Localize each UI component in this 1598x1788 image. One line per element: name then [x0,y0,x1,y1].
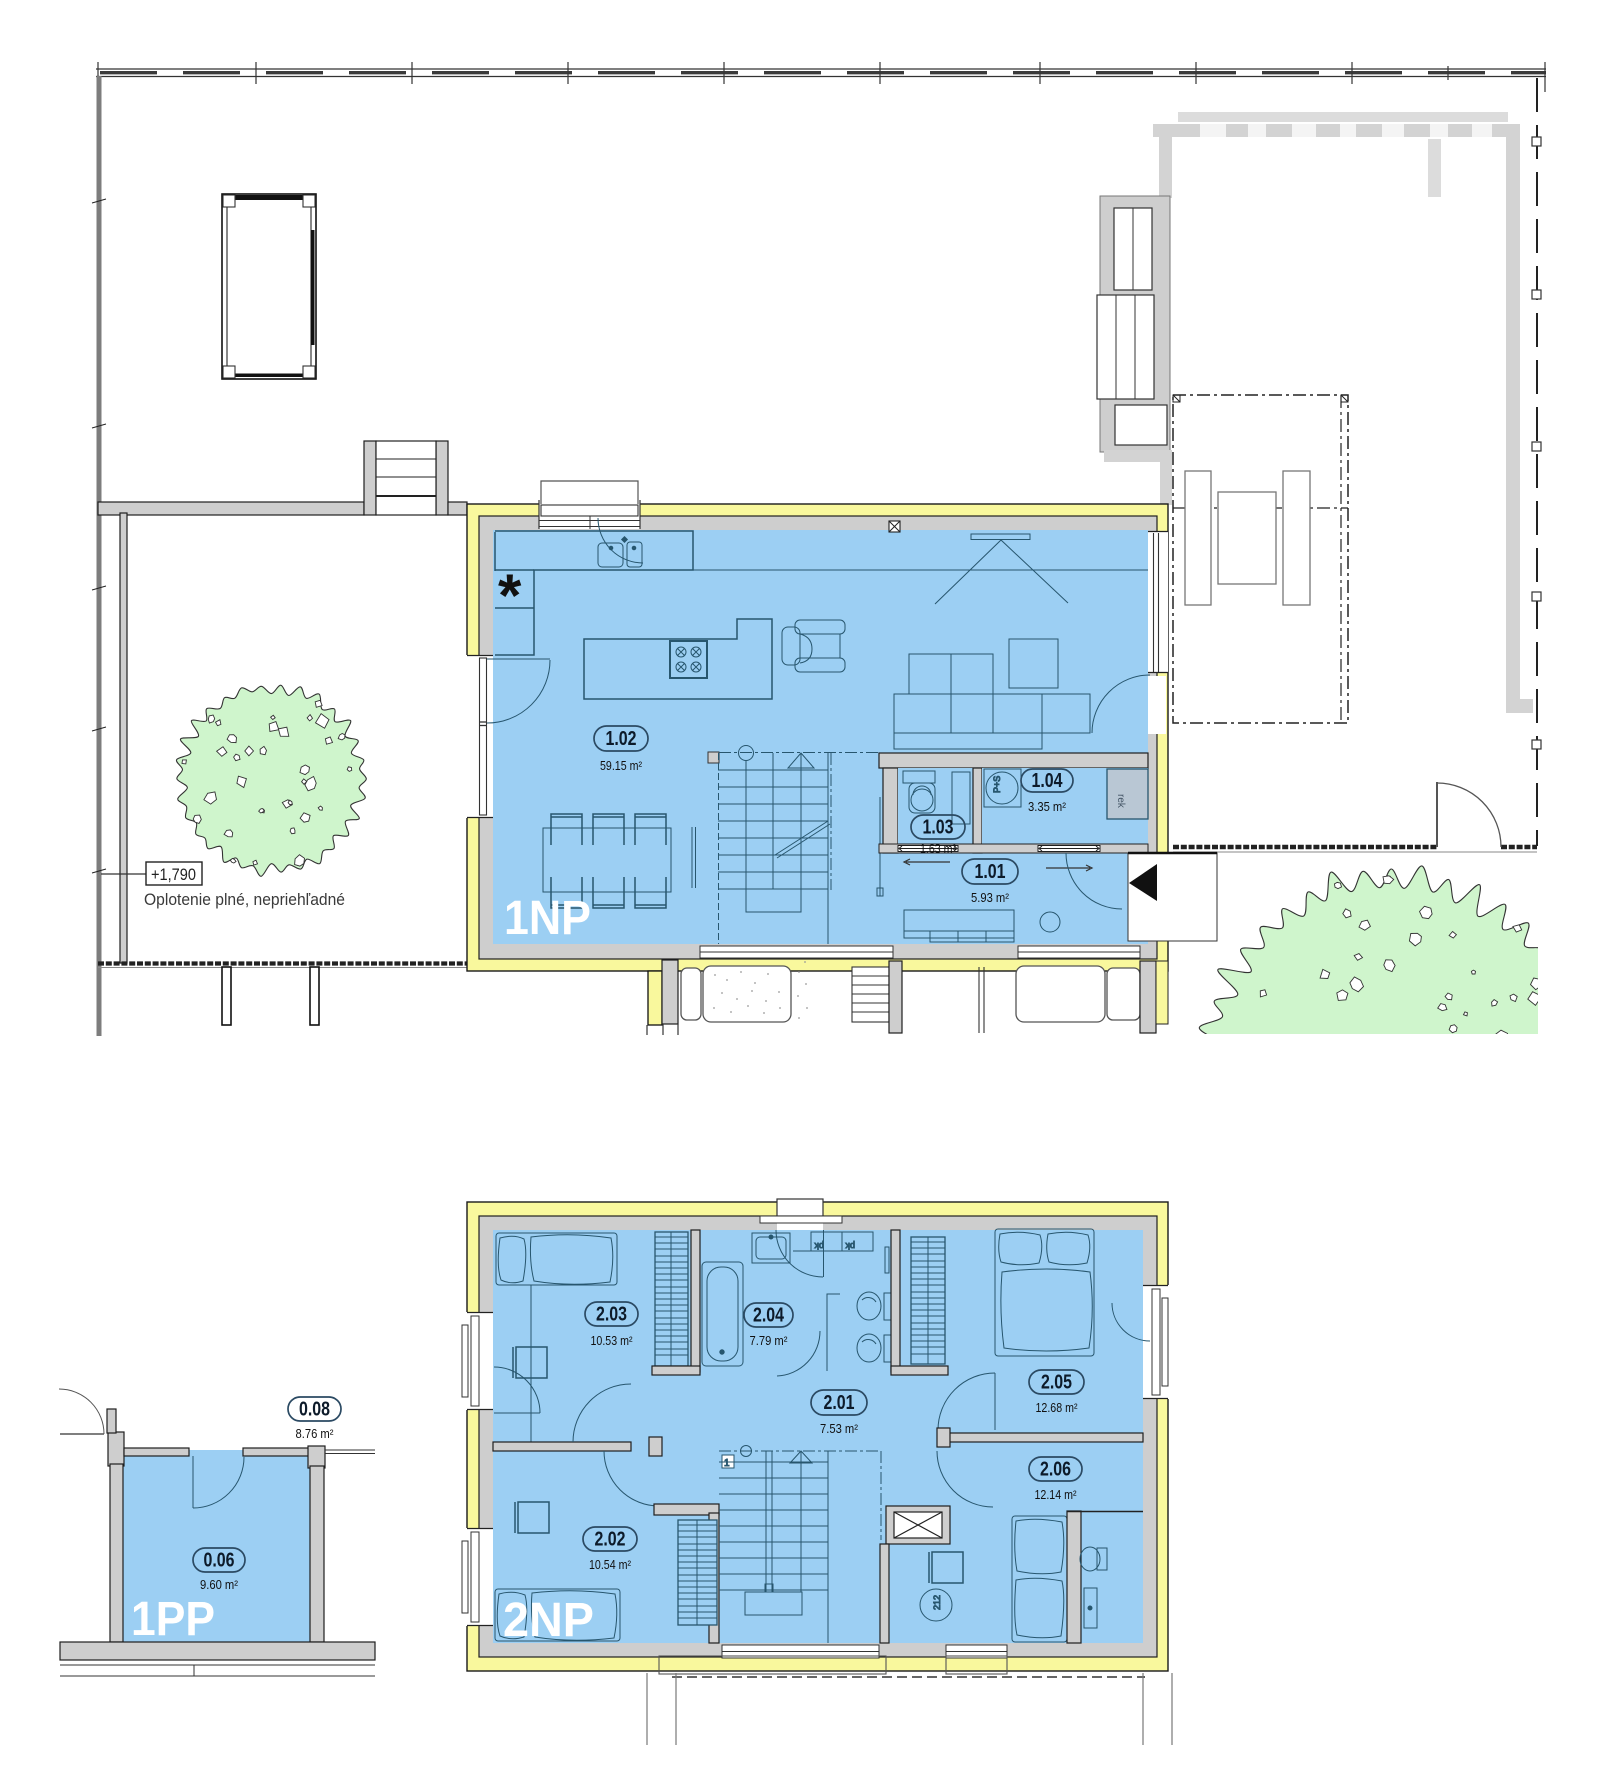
svg-text:5.93 m²: 5.93 m² [971,890,1010,905]
svg-text:P+S: P+S [992,776,1002,793]
svg-text:1.02: 1.02 [606,728,637,750]
svg-text:12.14 m²: 12.14 m² [1035,1487,1078,1502]
svg-text:8.76 m²: 8.76 m² [296,1426,335,1441]
svg-text:212: 212 [932,1595,942,1610]
svg-text:2.04: 2.04 [753,1305,785,1327]
svg-text:Oplotenie plné, nepriehľadné: Oplotenie plné, nepriehľadné [144,891,345,909]
svg-text:1NP: 1NP [504,892,591,945]
svg-text:2.01: 2.01 [824,1392,855,1414]
svg-text:7.79 m²: 7.79 m² [750,1333,789,1348]
svg-text:9.60 m²: 9.60 m² [200,1577,239,1592]
svg-text:59.15 m²: 59.15 m² [600,758,643,773]
svg-text:0.08: 0.08 [299,1399,330,1421]
svg-text:10.54 m²: 10.54 m² [589,1557,632,1572]
svg-text:pk: pk [814,1241,824,1251]
svg-text:1: 1 [724,1458,730,1469]
svg-text:1.63 m²: 1.63 m² [920,841,957,856]
svg-text:0.06: 0.06 [204,1550,235,1572]
svg-text:2NP: 2NP [503,1594,594,1647]
svg-text:10.53 m²: 10.53 m² [591,1333,634,1348]
svg-text:1.04: 1.04 [1032,770,1064,792]
svg-text:+1,790: +1,790 [151,866,196,884]
svg-text:2.05: 2.05 [1041,1372,1072,1394]
svg-text:1PP: 1PP [131,1593,215,1646]
svg-text:2.02: 2.02 [595,1529,626,1551]
svg-text:*: * [498,562,522,629]
svg-text:rek: rek [1115,794,1126,809]
svg-text:1.03: 1.03 [923,817,954,839]
svg-text:1.01: 1.01 [975,861,1006,883]
svg-text:3.35 m²: 3.35 m² [1028,799,1067,814]
svg-text:7.53 m²: 7.53 m² [820,1421,859,1436]
svg-text:2.06: 2.06 [1040,1459,1071,1481]
svg-text:pk: pk [845,1241,855,1251]
svg-text:12.68 m²: 12.68 m² [1036,1400,1079,1415]
svg-text:2.03: 2.03 [596,1304,627,1326]
